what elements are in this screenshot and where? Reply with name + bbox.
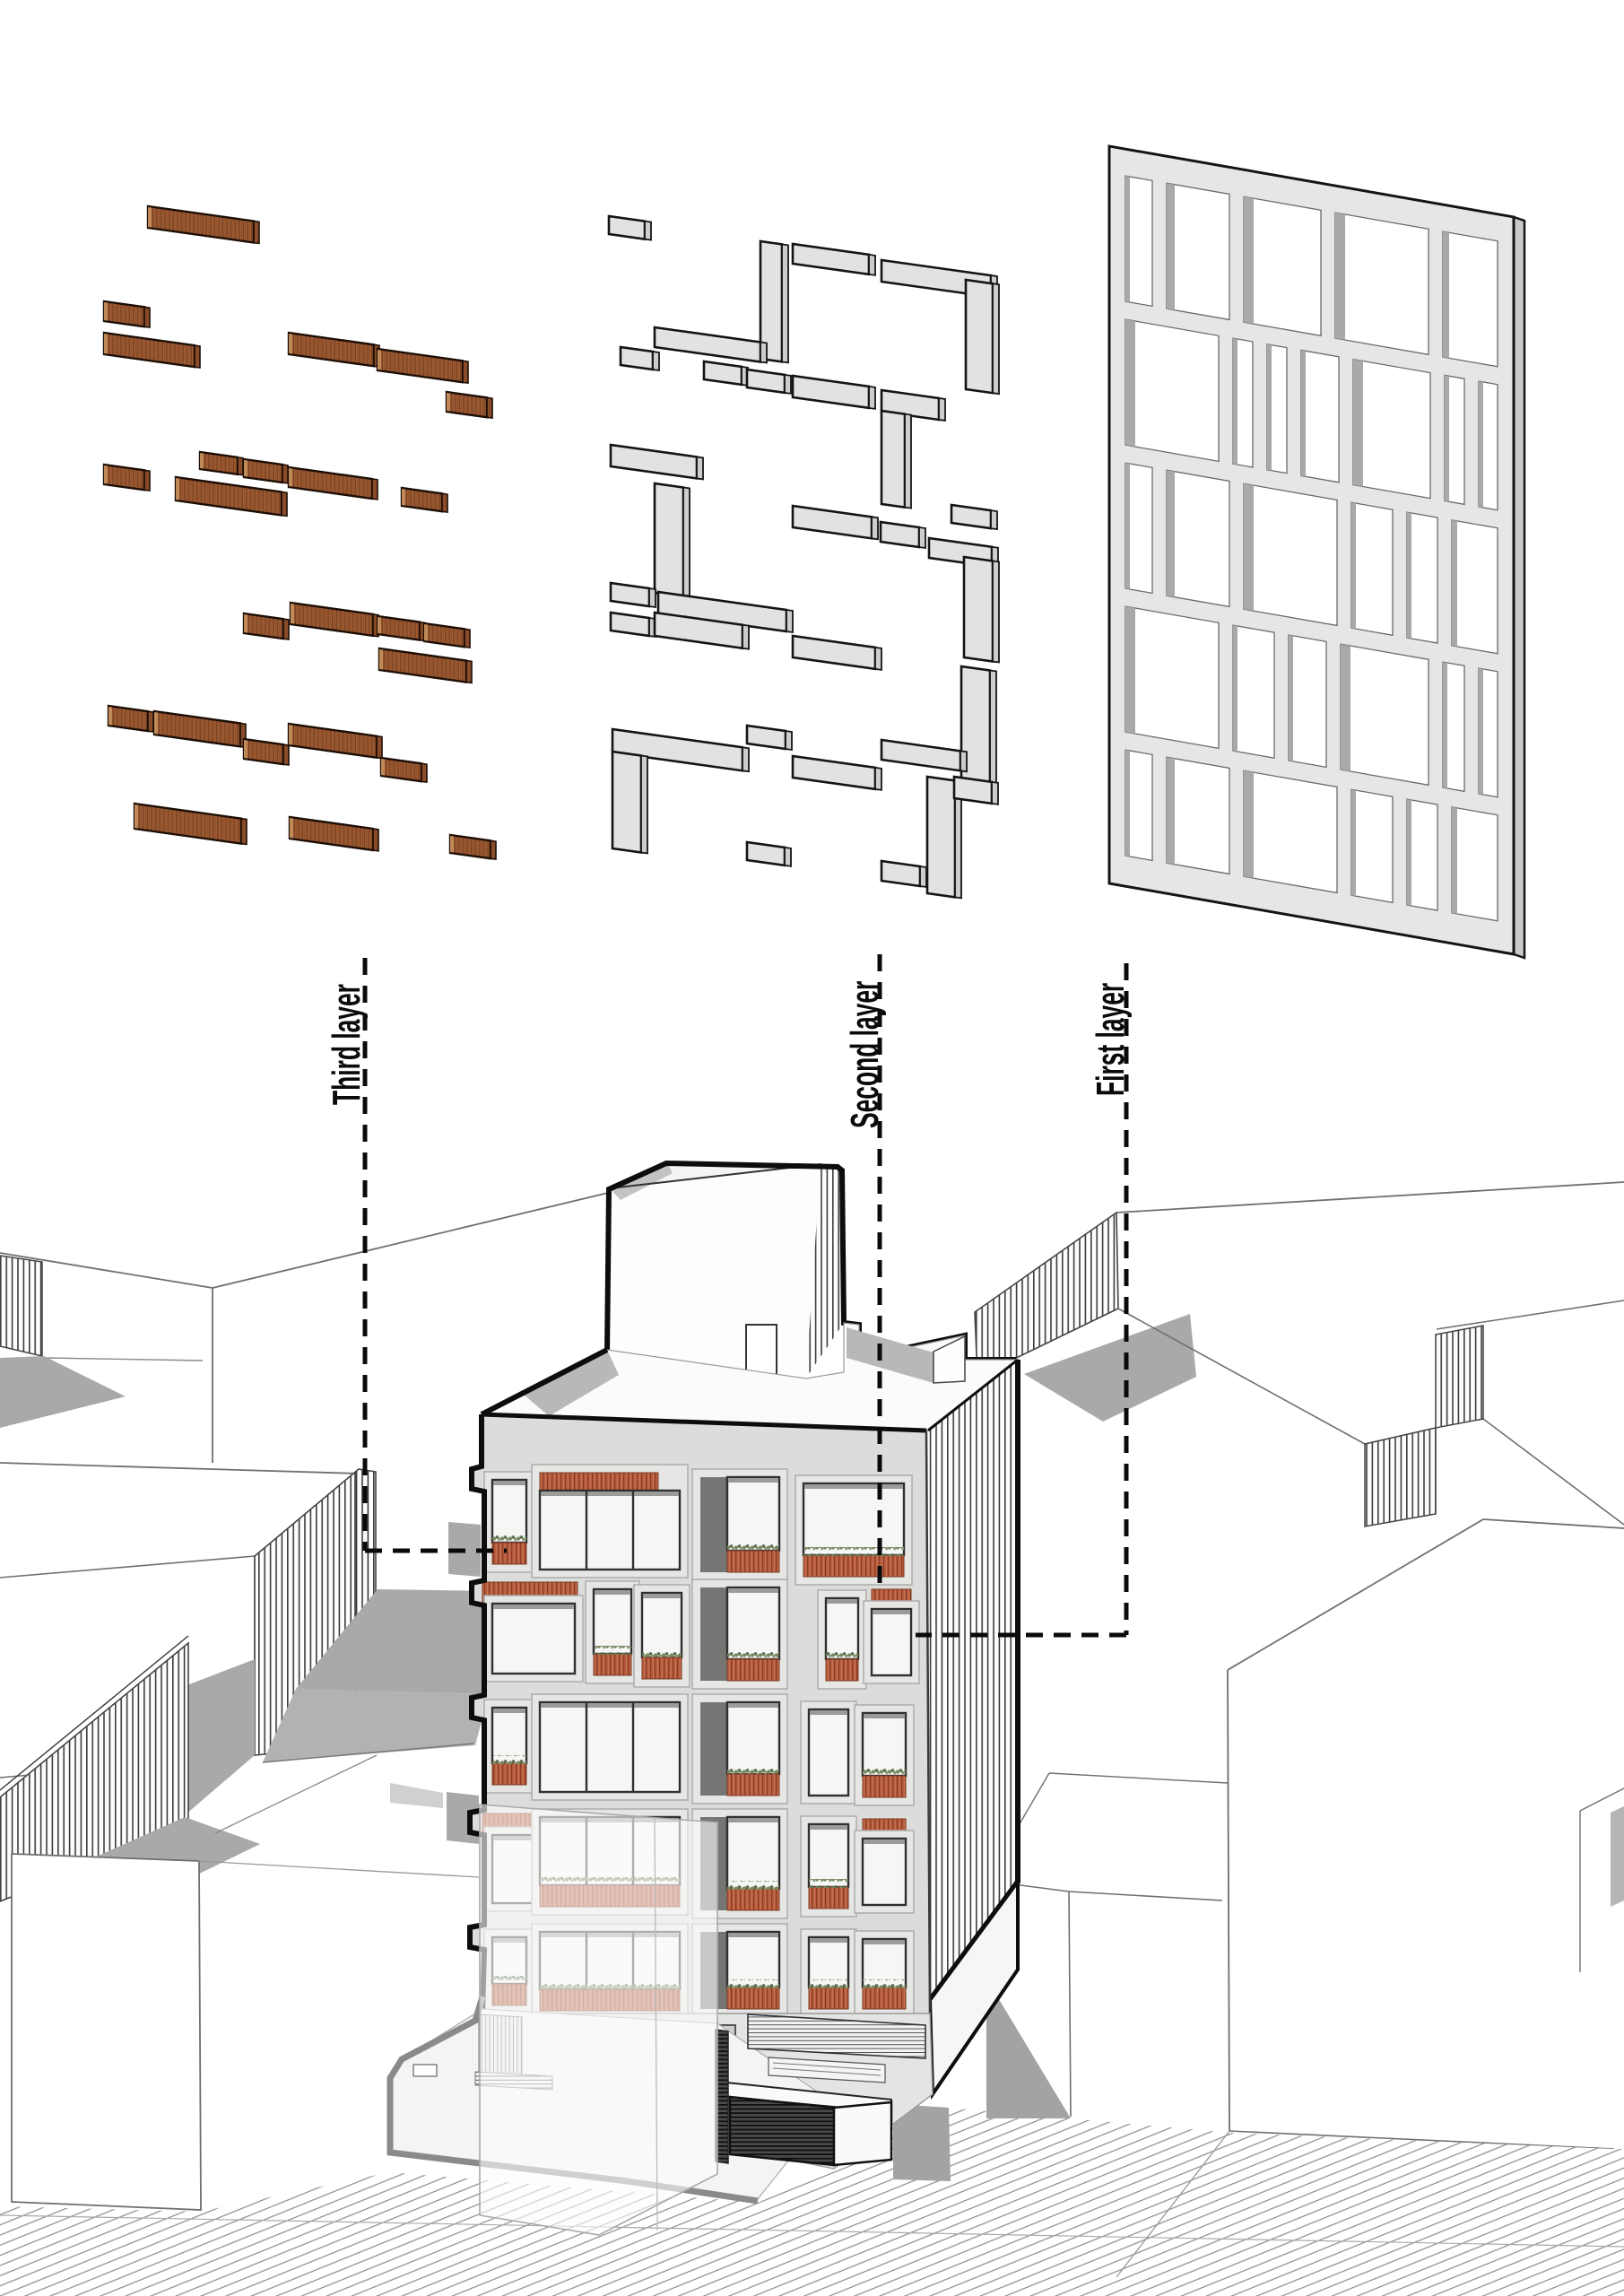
svg-text:Third layer: Third layer: [324, 984, 369, 1105]
